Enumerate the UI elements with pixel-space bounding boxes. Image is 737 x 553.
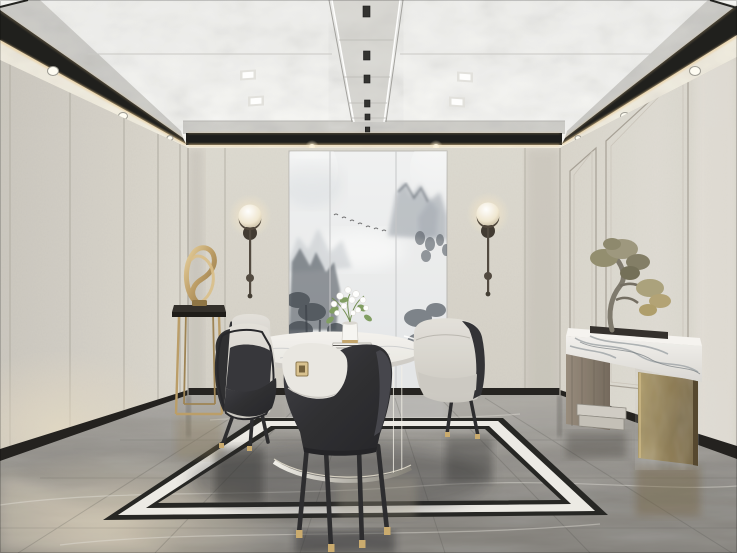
warm-tone-overlay — [0, 0, 737, 553]
interior-photo — [0, 0, 737, 553]
